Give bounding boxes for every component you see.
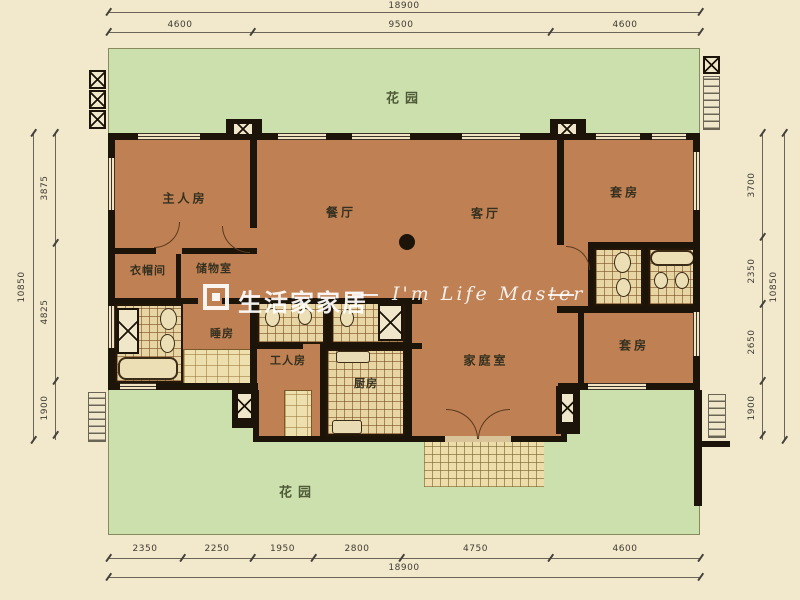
- dim-top-seg-1: 9500: [252, 20, 550, 30]
- dim-left-seg-0: 3875: [39, 158, 51, 218]
- wall: [557, 133, 564, 245]
- bathtub-icon: [118, 357, 178, 380]
- window-icon: [693, 152, 700, 210]
- column-dot: [399, 234, 415, 250]
- window-icon: [138, 133, 200, 140]
- room-label-cloakroom: 衣帽间: [130, 262, 166, 278]
- dim-tick: [781, 436, 787, 444]
- window-icon: [462, 133, 520, 140]
- room-label-suite-bottom: 套房: [619, 337, 649, 354]
- dim-bottom-seg-3: 2800: [313, 544, 401, 554]
- dim-line: [108, 577, 700, 578]
- bathtub-icon: [650, 250, 695, 266]
- utility-floor: [284, 390, 312, 440]
- wall: [108, 298, 198, 304]
- sink-icon: [675, 272, 689, 289]
- floor-plan-canvas: 18900 4600 9500 4600 2350 2250 1950 2800…: [0, 0, 800, 600]
- window-icon: [588, 383, 646, 390]
- column-x-icon: [232, 122, 254, 136]
- dim-left-seg-2: 1900: [39, 378, 51, 438]
- dim-line: [33, 133, 34, 440]
- dim-bottom-seg-0: 2350: [108, 544, 182, 554]
- dim-line: [108, 12, 700, 13]
- room-label-dining: 餐厅: [326, 204, 356, 221]
- watermark-logo-icon: [203, 284, 229, 310]
- window-icon: [278, 133, 326, 140]
- room-label-kitchen: 厨房: [354, 375, 378, 391]
- dim-right-seg-3: 1900: [746, 378, 758, 438]
- room-label-garden-top: 花园: [386, 88, 424, 107]
- dim-tick: [30, 436, 36, 444]
- wall: [405, 298, 412, 442]
- watermark-brand: 生活家家居: [238, 283, 368, 318]
- toilet-icon: [160, 308, 177, 330]
- wall: [176, 254, 181, 300]
- wall: [694, 390, 702, 506]
- watermark-dash: [352, 294, 378, 296]
- room-label-bedroom: 睡房: [210, 325, 234, 341]
- dim-line: [108, 558, 700, 559]
- wall: [557, 306, 700, 313]
- wall: [702, 441, 730, 447]
- room-label-garden-bottom: 花园: [279, 482, 317, 501]
- trellis-icon: [89, 70, 106, 89]
- dim-bottom-seg-4: 4750: [401, 544, 550, 554]
- dim-right-seg-0: 3700: [746, 155, 758, 215]
- window-icon: [108, 306, 115, 348]
- dim-top-seg-2: 4600: [550, 20, 700, 30]
- stairs-icon: [88, 392, 106, 442]
- room-label-family: 家庭室: [463, 352, 508, 369]
- trellis-icon: [89, 110, 106, 129]
- window-icon: [652, 133, 686, 140]
- wall: [578, 313, 584, 383]
- dim-top-seg-0: 4600: [108, 20, 252, 30]
- dim-bottom-seg-5: 4600: [550, 544, 700, 554]
- window-icon: [596, 133, 640, 140]
- wall: [511, 436, 567, 442]
- trellis-icon: [703, 56, 720, 74]
- dim-tick: [697, 573, 703, 581]
- dim-line: [55, 133, 56, 440]
- dim-line: [108, 32, 700, 33]
- wall: [643, 248, 648, 306]
- room-label-living: 客厅: [471, 205, 501, 222]
- room-label-maid: 工人房: [270, 352, 306, 368]
- deck-floor: [424, 442, 544, 487]
- wall: [320, 349, 326, 442]
- dim-bottom-seg-2: 1950: [252, 544, 313, 554]
- dim-bottom-seg-1: 2250: [182, 544, 252, 554]
- window-icon: [108, 158, 115, 210]
- dim-left-seg-1: 4825: [39, 282, 51, 342]
- wall: [250, 133, 257, 228]
- window-icon: [120, 383, 156, 390]
- wall: [253, 343, 303, 349]
- wall: [253, 436, 423, 442]
- column-x-icon: [236, 392, 253, 420]
- sink-icon: [160, 334, 175, 353]
- toilet-icon: [614, 252, 631, 273]
- dim-top-total: 18900: [108, 1, 700, 11]
- dim-line: [784, 133, 785, 440]
- dim-right-seg-1: 2350: [746, 241, 758, 301]
- dim-right-seg-2: 2650: [746, 312, 758, 372]
- shower-icon: [378, 304, 403, 341]
- kitchen-counter: [332, 420, 362, 434]
- stairs-icon: [703, 76, 720, 130]
- dim-line: [762, 133, 763, 440]
- watermark-dash: [548, 294, 574, 296]
- dim-tick: [697, 554, 703, 562]
- kitchen-counter: [336, 351, 370, 363]
- column-x-icon: [556, 122, 578, 136]
- dim-right-total: 10850: [768, 257, 780, 317]
- dim-left-total: 10850: [16, 257, 28, 317]
- dim-bottom-total: 18900: [108, 563, 700, 573]
- sink-icon: [616, 278, 631, 297]
- room-label-suite-top: 套房: [610, 184, 640, 201]
- trellis-icon: [89, 90, 106, 109]
- window-icon: [352, 133, 410, 140]
- room-label-storage: 储物室: [196, 260, 232, 276]
- window-icon: [693, 312, 700, 356]
- shower-icon: [117, 308, 139, 354]
- room-label-master: 主人房: [162, 190, 207, 207]
- wall: [108, 248, 156, 254]
- column-x-icon: [560, 392, 575, 424]
- wall: [588, 242, 594, 312]
- toilet-icon: [654, 272, 668, 289]
- stairs-icon: [708, 394, 726, 438]
